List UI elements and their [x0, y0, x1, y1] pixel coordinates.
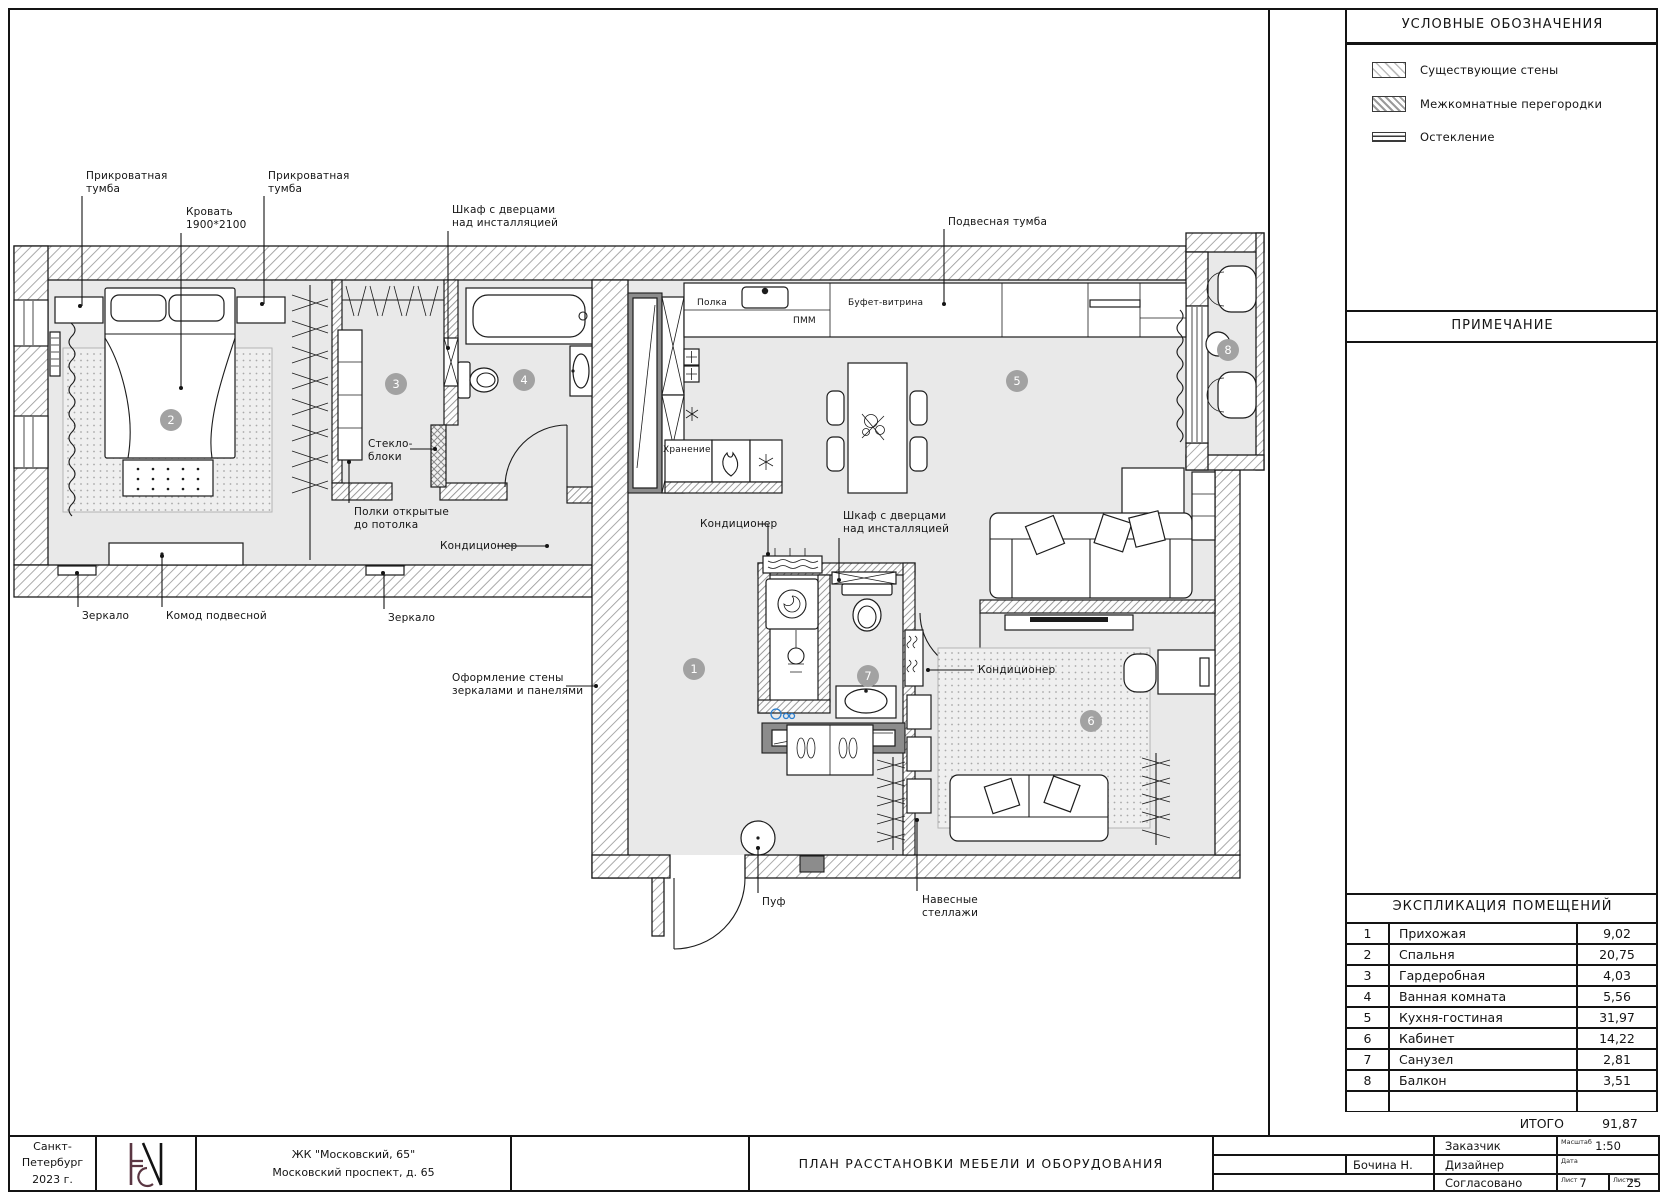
schedule-row: 1Прихожая9,02 [1345, 922, 1660, 945]
note-title: ПРИМЕЧАНИЕ [1345, 318, 1660, 333]
note-top-line [1345, 310, 1658, 312]
scale-cell: Масштаб 1:50 [1556, 1135, 1660, 1156]
project-cell: ЖК "Московский, 65" Московский проспект,… [195, 1135, 512, 1192]
sheet-label: Лист [1561, 1176, 1577, 1184]
schedule-row: 5Кухня-гостиная31,97 [1345, 1006, 1660, 1029]
schedule-cell-area: 31,97 [1576, 1006, 1658, 1029]
schedule-cell-area: 20,75 [1576, 943, 1658, 966]
schedule-cell-num: 3 [1345, 964, 1390, 987]
schedule-cell-name: Ванная комната [1388, 985, 1578, 1008]
schedule-cell-num: 4 [1345, 985, 1390, 1008]
schedule-cell-area: 9,02 [1576, 922, 1658, 945]
sheet-cell: Лист 7 [1556, 1173, 1610, 1192]
legend-item: Существующие стены [1372, 62, 1558, 78]
schedule-total-row: ИТОГО 91,87 [1345, 1112, 1660, 1135]
schedule-cell-area: 14,22 [1576, 1027, 1658, 1050]
designer-logo [123, 1140, 169, 1188]
drawing-title-cell: ПЛАН РАССТАНОВКИ МЕБЕЛИ И ОБОРУДОВАНИЯ [748, 1135, 1214, 1192]
sheet-value: 7 [1579, 1176, 1586, 1190]
scale-value: 1:50 [1595, 1139, 1621, 1153]
schedule-cell-name: Санузел [1388, 1048, 1578, 1071]
stamp-empty-cell2 [1212, 1173, 1435, 1192]
schedule-cell-name: Балкон [1388, 1069, 1578, 1092]
logo-cell [95, 1135, 197, 1192]
empty-cell [510, 1135, 750, 1192]
sheets-label: Листов [1613, 1176, 1637, 1184]
drawing-sheet: Прикроватная тумбаПрикроватная тумбаКров… [0, 0, 1668, 1200]
legend-label: Остекление [1420, 130, 1495, 144]
project-address: Московский проспект, д. 65 [272, 1164, 434, 1182]
schedule-row: 4Ванная комната5,56 [1345, 985, 1660, 1008]
scale-label: Масштаб [1561, 1138, 1592, 1146]
schedule-cell-name: Прихожая [1388, 922, 1578, 945]
schedule-cell-name: Гардеробная [1388, 964, 1578, 987]
glazing-swatch [1372, 132, 1406, 142]
schedule-cell-num: 8 [1345, 1069, 1390, 1092]
schedule-cell-name [1388, 1090, 1578, 1113]
designer-role-cell: Дизайнер [1433, 1154, 1558, 1175]
schedule-cell-area: 2,81 [1576, 1048, 1658, 1071]
legend-item: Остекление [1372, 130, 1495, 144]
total-label: ИТОГО [1345, 1112, 1580, 1135]
date-label: Дата [1561, 1157, 1578, 1165]
city-cell: Санкт-Петербург 2023 г. [8, 1135, 97, 1192]
schedule-row: 8Балкон3,51 [1345, 1069, 1660, 1092]
schedule-cell-num: 2 [1345, 943, 1390, 966]
plan-sidebar-divider [1268, 8, 1270, 1135]
schedule-cell-name: Кухня-гостиная [1388, 1006, 1578, 1029]
sheets-cell: Листов 25 [1608, 1173, 1660, 1192]
schedule-cell-num: 7 [1345, 1048, 1390, 1071]
schedule-cell-name: Спальня [1388, 943, 1578, 966]
stamp-empty-cell [1212, 1154, 1347, 1175]
note-bottom-line [1345, 341, 1658, 343]
schedule-cell-area: 4,03 [1576, 964, 1658, 987]
schedule-top-line [1345, 893, 1658, 895]
total-value: 91,87 [1580, 1112, 1660, 1135]
schedule-cell-name: Кабинет [1388, 1027, 1578, 1050]
stamp-sign-cell [1212, 1135, 1435, 1156]
drawing-title: ПЛАН РАССТАНОВКИ МЕБЕЛИ И ОБОРУДОВАНИЯ [799, 1156, 1164, 1171]
legend-label: Межкомнатные перегородки [1420, 97, 1602, 111]
city: Санкт-Петербург [10, 1139, 95, 1172]
schedule-cell-num: 6 [1345, 1027, 1390, 1050]
project-name: ЖК "Московский, 65" [272, 1146, 434, 1164]
date-cell: Дата [1556, 1154, 1660, 1175]
schedule-cell-area: 5,56 [1576, 985, 1658, 1008]
schedule-cell-num [1345, 1090, 1390, 1113]
legend-item: Межкомнатные перегородки [1372, 96, 1602, 112]
year: 2023 г. [10, 1172, 95, 1189]
schedule-row: 3Гардеробная4,03 [1345, 964, 1660, 987]
existing-walls-swatch [1372, 62, 1406, 78]
schedule-row: 7Санузел2,81 [1345, 1048, 1660, 1071]
schedule-cell-num: 5 [1345, 1006, 1390, 1029]
customer-cell: Заказчик [1433, 1135, 1558, 1156]
partitions-swatch [1372, 96, 1406, 112]
designer-name-cell: Бочина Н. [1345, 1154, 1435, 1175]
legend-title-underline [1345, 42, 1658, 45]
legend-label: Существующие стены [1420, 63, 1558, 77]
schedule-row: 2Спальня20,75 [1345, 943, 1660, 966]
schedule-row: 6Кабинет14,22 [1345, 1027, 1660, 1050]
legend-title: УСЛОВНЫЕ ОБОЗНАЧЕНИЯ [1345, 17, 1660, 32]
schedule-row [1345, 1090, 1660, 1113]
schedule-cell-area: 3,51 [1576, 1069, 1658, 1092]
designer-name: Бочина Н. [1347, 1158, 1413, 1172]
schedule-cell-area [1576, 1090, 1658, 1113]
approved-cell: Согласовано [1433, 1173, 1558, 1192]
schedule-cell-num: 1 [1345, 922, 1390, 945]
schedule-title: ЭКСПЛИКАЦИЯ ПОМЕЩЕНИЙ [1345, 899, 1660, 914]
